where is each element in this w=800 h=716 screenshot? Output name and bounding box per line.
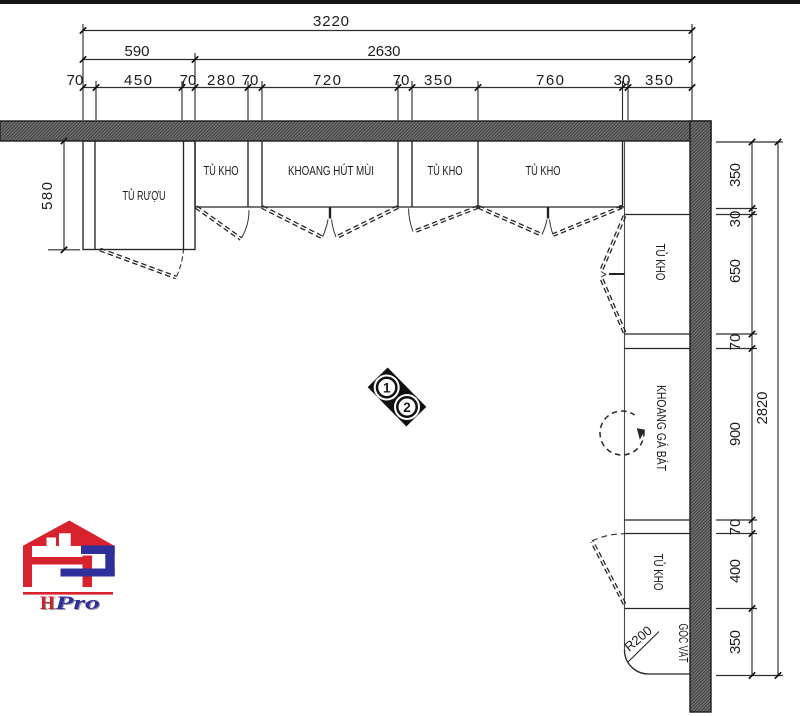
- svg-text:280: 280: [207, 72, 235, 89]
- svg-text:70: 70: [242, 72, 259, 89]
- svg-text:KHOANG GÁ BÁT: KHOANG GÁ BÁT: [654, 385, 669, 471]
- svg-text:70: 70: [393, 72, 410, 89]
- svg-text:TỦ KHO: TỦ KHO: [651, 554, 666, 591]
- svg-text:350: 350: [727, 163, 744, 187]
- svg-text:TỦ KHO: TỦ KHO: [204, 163, 239, 178]
- svg-text:350: 350: [727, 630, 744, 654]
- svg-text:760: 760: [536, 72, 564, 89]
- svg-text:2: 2: [403, 400, 411, 415]
- svg-text:70: 70: [67, 72, 84, 89]
- svg-text:KHOANG HÚT MÙI: KHOANG HÚT MÙI: [288, 163, 374, 178]
- svg-text:TỦ KHO: TỦ KHO: [526, 163, 561, 178]
- svg-text:TỦ KHO: TỦ KHO: [653, 244, 668, 281]
- svg-text:900: 900: [727, 422, 744, 446]
- svg-text:70: 70: [727, 519, 744, 536]
- svg-text:3220: 3220: [313, 13, 349, 30]
- svg-text:70: 70: [727, 334, 744, 351]
- svg-text:590: 590: [125, 43, 150, 60]
- svg-text:GÓC VÁT: GÓC VÁT: [676, 624, 691, 663]
- svg-text:2630: 2630: [368, 43, 401, 60]
- svg-text:580: 580: [39, 182, 56, 210]
- svg-text:H: H: [40, 593, 55, 614]
- svg-text:30: 30: [727, 211, 744, 228]
- svg-text:650: 650: [727, 259, 744, 283]
- svg-text:350: 350: [645, 72, 673, 89]
- svg-text:450: 450: [124, 72, 152, 89]
- svg-text:350: 350: [424, 72, 452, 89]
- svg-text:1: 1: [383, 380, 391, 395]
- svg-text:400: 400: [727, 559, 744, 583]
- svg-text:70: 70: [180, 72, 197, 89]
- svg-text:30: 30: [614, 72, 631, 89]
- svg-text:720: 720: [313, 72, 341, 89]
- svg-text:2820: 2820: [754, 392, 771, 425]
- svg-text:TỦ KHO: TỦ KHO: [428, 163, 463, 178]
- svg-text:Pro: Pro: [53, 593, 100, 614]
- svg-text:TỦ RƯỢU: TỦ RƯỢU: [123, 188, 166, 203]
